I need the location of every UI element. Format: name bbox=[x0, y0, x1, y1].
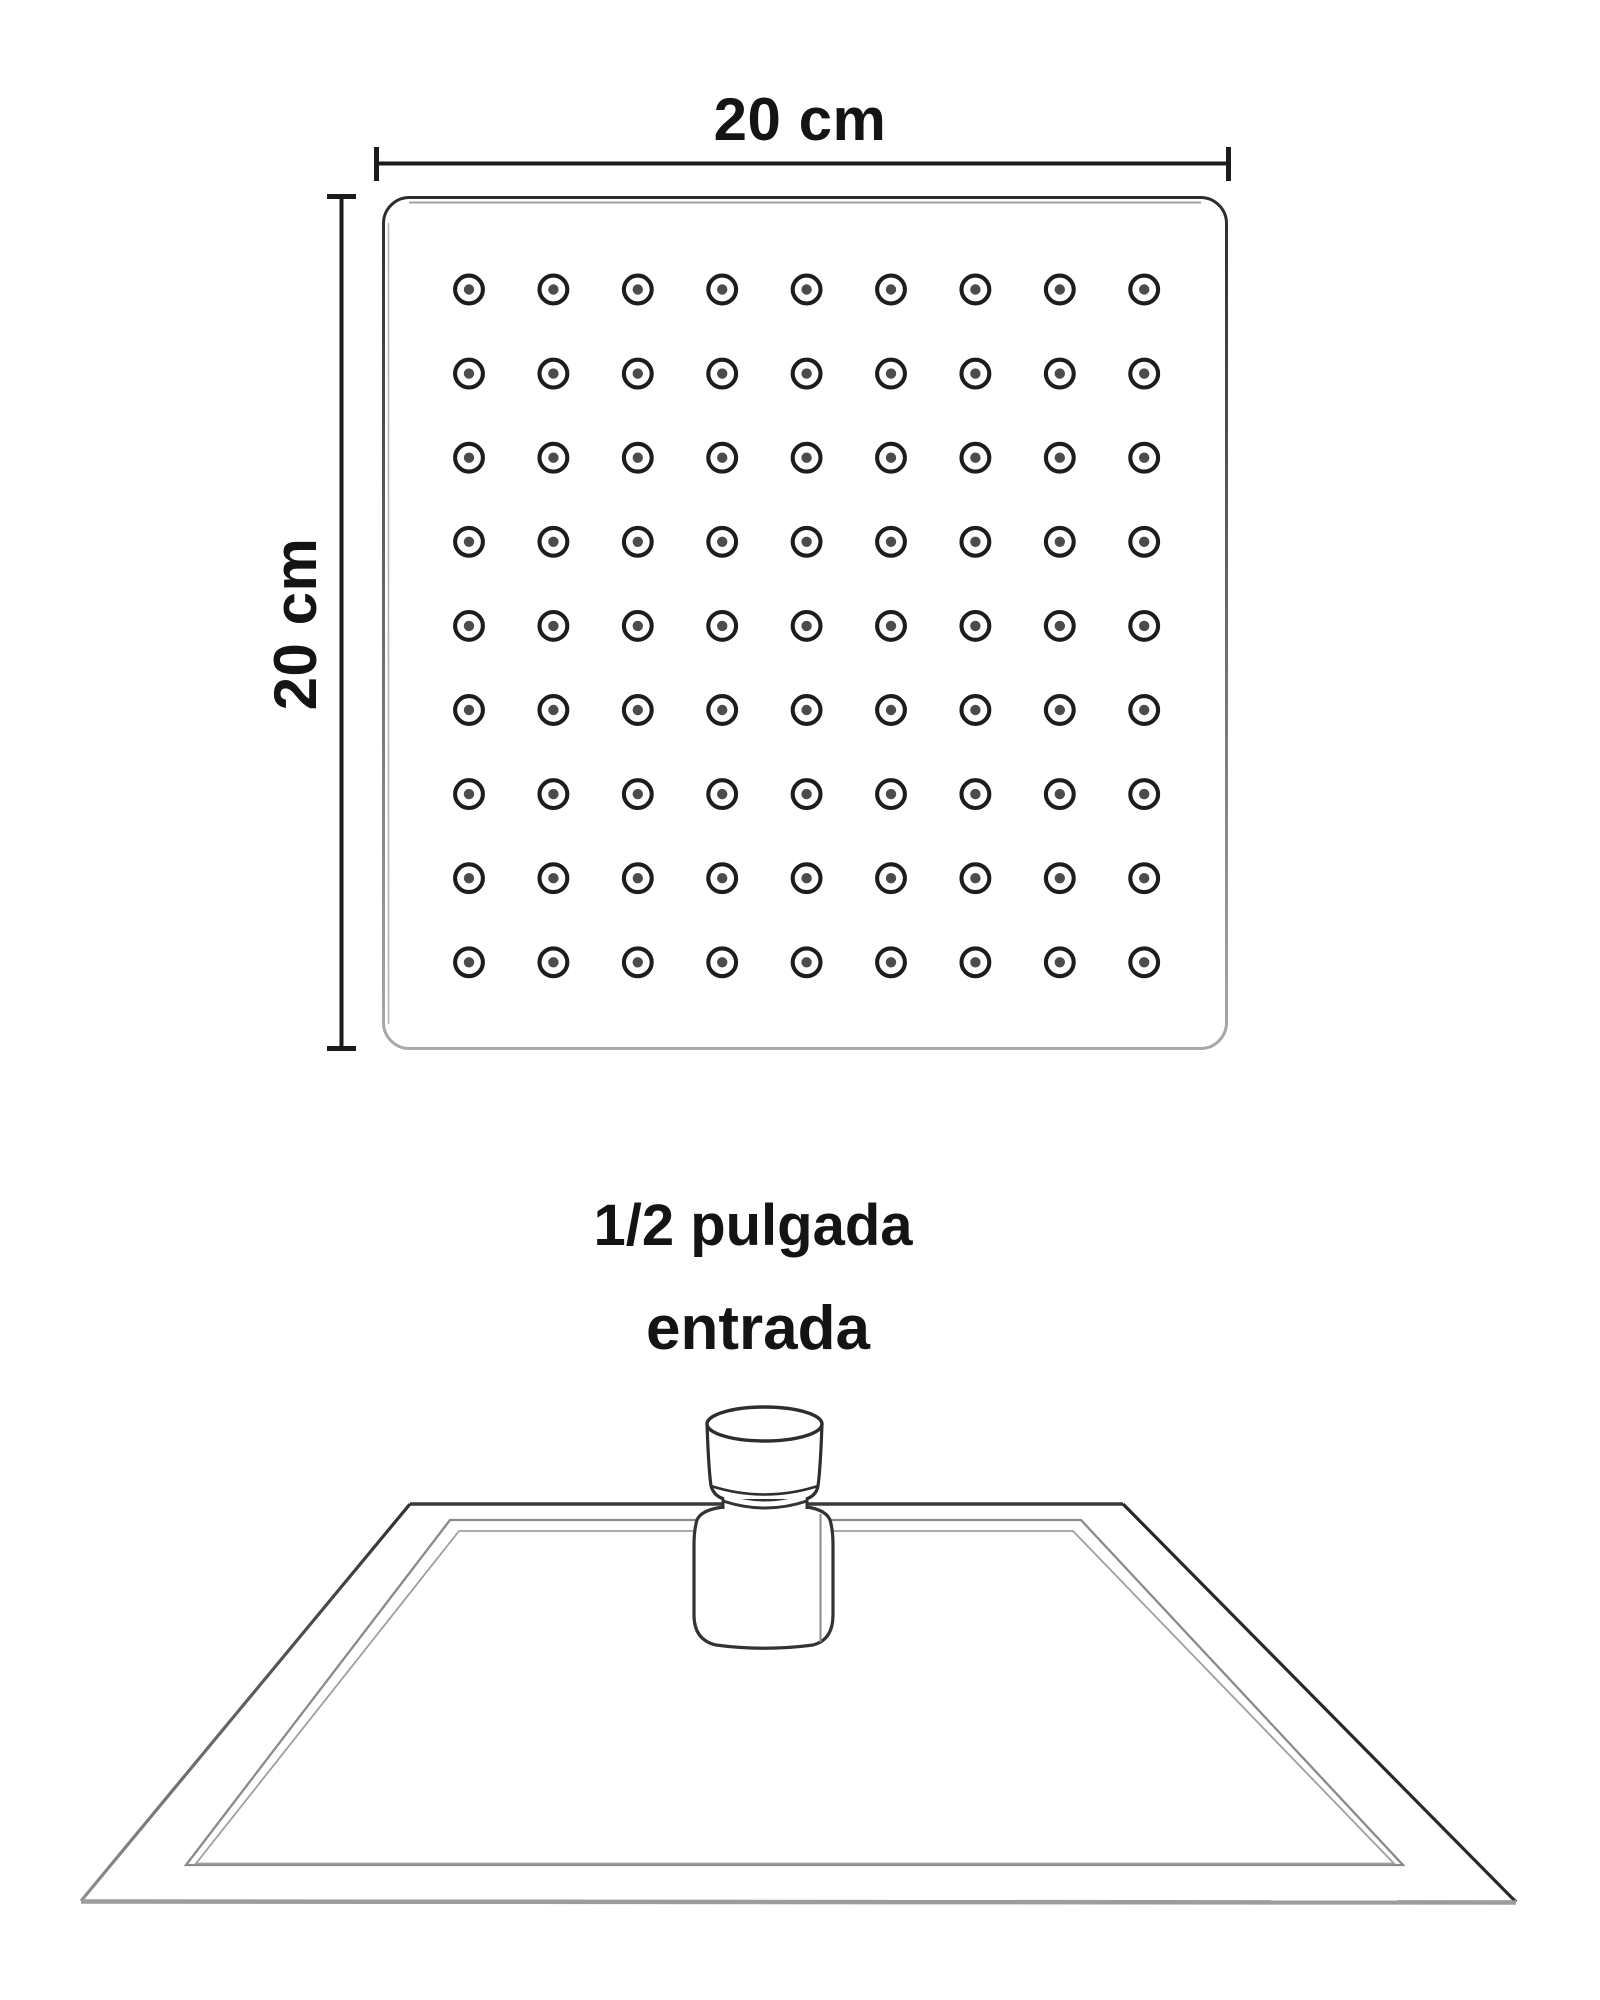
svg-text:20 cm: 20 cm bbox=[262, 538, 329, 711]
svg-text:entrada: entrada bbox=[646, 1294, 870, 1363]
svg-text:1/2 pulgada: 1/2 pulgada bbox=[593, 1193, 913, 1258]
svg-text:20 cm: 20 cm bbox=[714, 86, 887, 153]
